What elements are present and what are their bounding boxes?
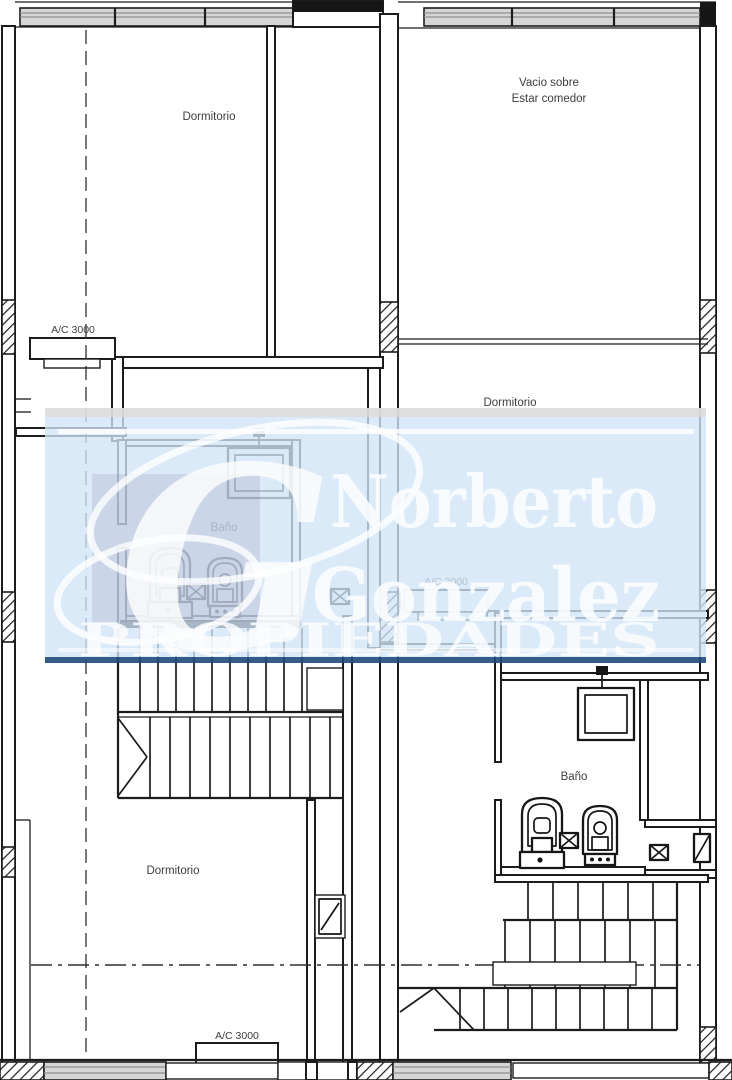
closet-top-wall <box>645 820 716 827</box>
ac-unit-top-left <box>30 338 115 368</box>
stair-treads <box>150 717 330 798</box>
column-hatch <box>2 300 15 354</box>
room-label-bano-right: Baño <box>561 771 588 783</box>
watermark-name-line1: Norberto <box>330 459 658 544</box>
window-band-top-right <box>424 8 700 26</box>
left-outer-wall <box>2 26 15 1063</box>
stair2-top-wall <box>495 875 708 882</box>
stair-treads <box>460 988 652 1030</box>
room-label-dormitorio-right: Dormitorio <box>483 397 536 409</box>
room-label-vacio-line2: Estar comedor <box>512 93 587 105</box>
vent-box-icon <box>650 845 668 860</box>
floor-plan-page: Dormitorio Vacio sobre Estar comedor Dor… <box>0 0 732 1080</box>
watermark-navy-rule <box>45 657 706 663</box>
top-right-corner-wall <box>700 2 716 28</box>
winder-line <box>118 757 147 796</box>
bidet-icon <box>583 806 617 865</box>
room-label-dormitorio-top-left: Dormitorio <box>182 111 235 123</box>
stair-treads <box>528 882 653 920</box>
column-hatch <box>700 300 716 353</box>
column-hatch <box>380 302 398 352</box>
stair1-right-wall <box>343 616 352 1063</box>
duct-symbol <box>694 834 710 862</box>
ac-label-top-left: A/C 3000 <box>51 324 95 336</box>
shaft-symbol <box>315 895 345 938</box>
room-label-dormitorio-bottom-left: Dormitorio <box>146 865 199 877</box>
drain-box-icon <box>560 833 578 848</box>
hall-top-wall <box>112 357 383 368</box>
column-hatch <box>2 592 15 642</box>
bath2-inner-wall <box>640 680 648 820</box>
column-hatch <box>2 847 15 877</box>
dormitorio-bl-right-wall <box>307 800 315 1063</box>
floor-plan-drawing: Dormitorio Vacio sobre Estar comedor Dor… <box>0 0 732 1080</box>
stair-beam-box <box>493 962 636 985</box>
stair-landing <box>307 668 343 710</box>
window-sill <box>166 1063 278 1079</box>
toilet-icon <box>520 798 564 868</box>
room-label-vacio-line1: Vacio sobre <box>519 77 579 89</box>
winder-line <box>400 988 434 1012</box>
window-band-top-left <box>20 8 293 26</box>
watermark: G Norberto Gonzalez PROPIEDADES <box>45 394 706 708</box>
staircase-right <box>398 882 677 1030</box>
window-sill <box>513 1063 709 1078</box>
bathroom-2-fixtures <box>520 666 710 868</box>
winder-line <box>434 988 474 1030</box>
winder-line <box>118 718 147 757</box>
watermark-top-strip <box>45 408 706 417</box>
column-hatch <box>700 1027 716 1063</box>
ac-label-bottom-left: A/C 3000 <box>215 1030 259 1042</box>
room-wall <box>267 26 275 358</box>
bottom-wall-band <box>0 1060 732 1080</box>
watermark-rule-bottom <box>58 648 694 652</box>
